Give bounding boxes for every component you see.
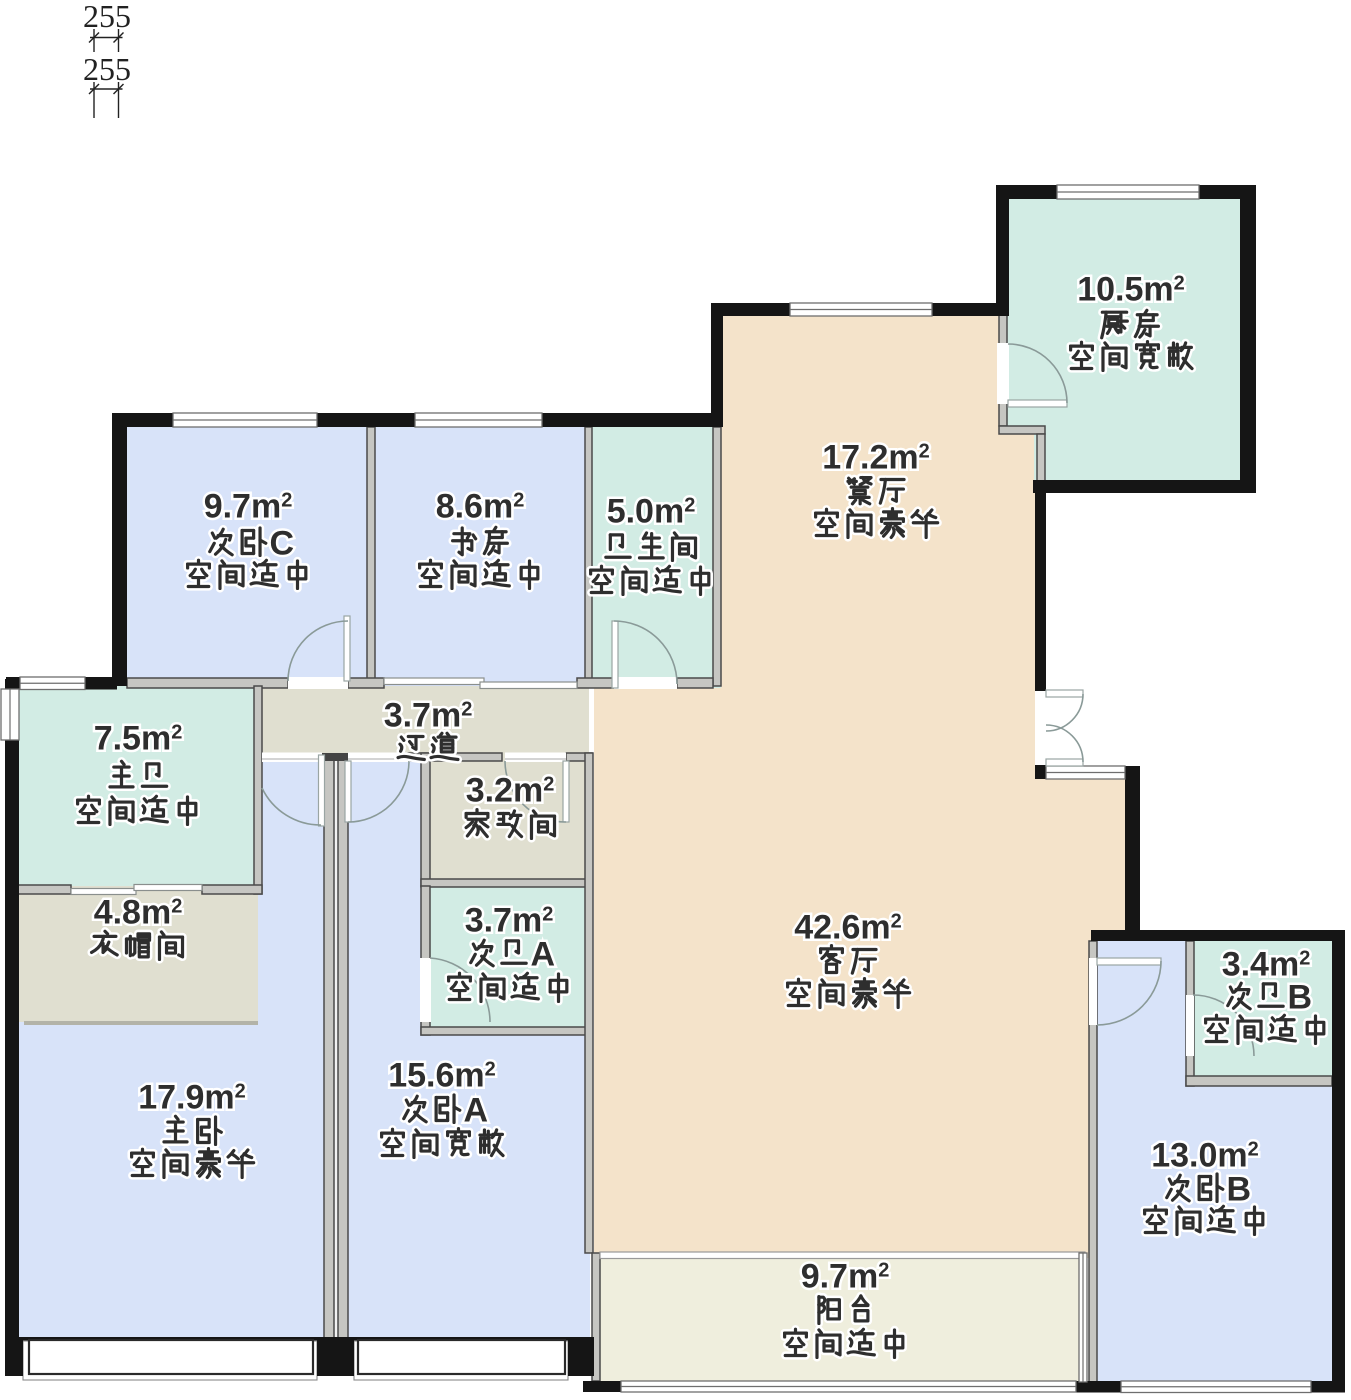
svg-text:9.7m2: 9.7m2 (801, 1258, 890, 1296)
svg-text:17.2m2: 17.2m2 (822, 439, 930, 477)
svg-text:7.5m2: 7.5m2 (94, 720, 183, 758)
svg-text:3.2m2: 3.2m2 (466, 772, 555, 810)
svg-text:4.8m2: 4.8m2 (94, 894, 183, 932)
svg-text:255: 255 (83, 51, 131, 87)
svg-text:B: B (1288, 979, 1313, 1017)
svg-text:42.6m2: 42.6m2 (794, 909, 902, 947)
svg-text:A: A (464, 1092, 489, 1130)
svg-text:13.0m2: 13.0m2 (1151, 1137, 1259, 1175)
svg-text:B: B (1227, 1171, 1252, 1209)
svg-text:255: 255 (83, 0, 131, 34)
svg-text:C: C (270, 525, 295, 563)
svg-text:5.0m2: 5.0m2 (607, 493, 696, 531)
svg-text:A: A (531, 936, 556, 974)
svg-text:9.7m2: 9.7m2 (204, 488, 293, 526)
svg-text:10.5m2: 10.5m2 (1077, 271, 1185, 309)
svg-text:3.7m2: 3.7m2 (384, 697, 473, 735)
svg-text:3.7m2: 3.7m2 (465, 902, 554, 940)
svg-text:8.6m2: 8.6m2 (436, 488, 525, 526)
svg-text:15.6m2: 15.6m2 (388, 1057, 496, 1095)
svg-text:17.9m2: 17.9m2 (138, 1079, 246, 1117)
